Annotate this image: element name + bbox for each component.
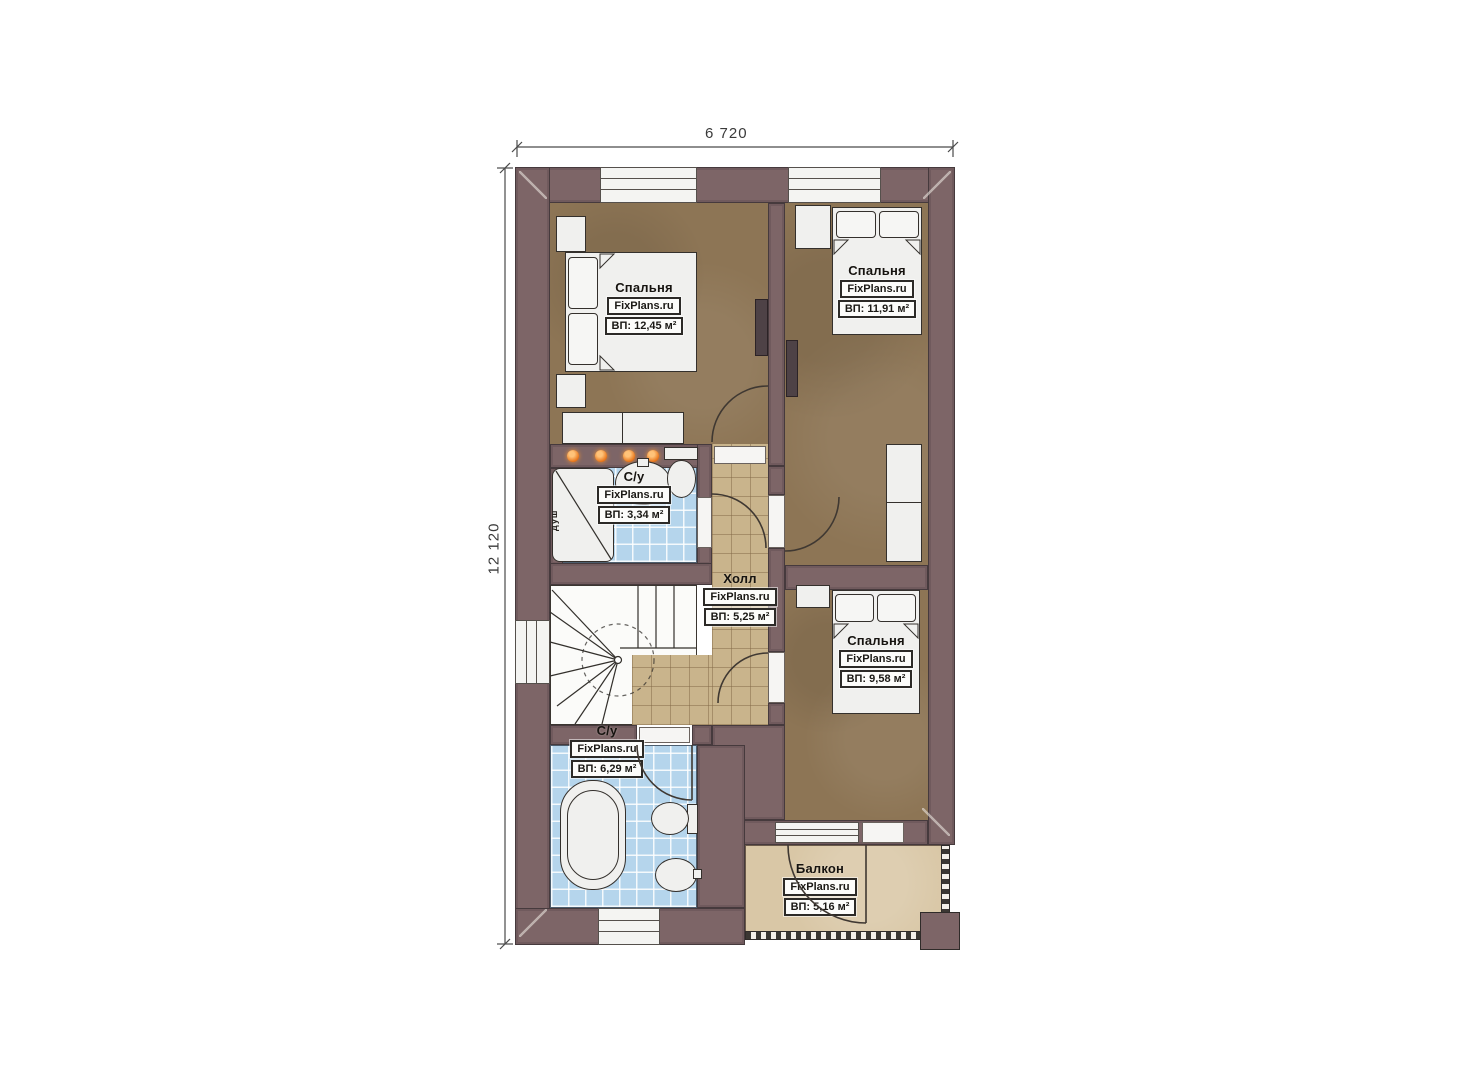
window-balcony (775, 822, 859, 843)
room-name: С/у (597, 723, 618, 738)
window-left-stairs (515, 620, 550, 684)
pillow (836, 211, 876, 238)
watermark: FixPlans.ru (570, 740, 643, 758)
bathtub-inner (567, 790, 619, 880)
wall-bath-main-right (697, 745, 745, 908)
room-area: ВП: 11,91 м² (838, 300, 916, 318)
corner-brace-bottom-right (922, 808, 950, 836)
dresser-left (562, 412, 623, 444)
wall-divider-b1-b2 (768, 203, 785, 466)
nightstand-top (556, 216, 586, 252)
corner-brace-top-left (519, 171, 547, 199)
wall-corridor-right-a (768, 466, 785, 495)
dimension-width-label: 6 720 (705, 125, 748, 142)
watermark: FixPlans.ru (783, 878, 856, 896)
bath-small-door-threshold (697, 497, 712, 548)
bathroom-main-label: С/у FixPlans.ru ВП: 6,29 м² (562, 723, 652, 778)
balcony-door-threshold (862, 822, 904, 843)
pillow (879, 211, 919, 238)
room-area: ВП: 5,25 м² (704, 608, 777, 626)
watermark: FixPlans.ru (840, 280, 913, 298)
room-area: ВП: 12,45 м² (605, 317, 684, 335)
room-name: С/у (624, 469, 645, 484)
sink-tap-icon (637, 458, 649, 467)
window-top-1 (600, 167, 697, 203)
floor-plan: 6 720 12 120 (0, 0, 1473, 1080)
bathroom-small-label: С/у FixPlans.ru ВП: 3,34 м² (588, 469, 680, 524)
room-name: Спальня (615, 280, 673, 295)
hall-floor-extension (632, 655, 712, 725)
bidet-tap-icon (693, 869, 702, 879)
corner-brace-bottom-left (519, 909, 547, 937)
corner-brace-top-right (923, 171, 951, 199)
watermark: FixPlans.ru (703, 588, 776, 606)
watermark: FixPlans.ru (839, 650, 912, 668)
pillow (877, 594, 916, 622)
bedroom-1-label: Спальня FixPlans.ru ВП: 12,45 м² (588, 280, 700, 335)
bidet-icon (655, 858, 697, 892)
wall-stairs-bottom-b (692, 725, 712, 745)
spotlight-icon (567, 450, 579, 462)
watermark: FixPlans.ru (597, 486, 670, 504)
wall-right (928, 167, 955, 845)
room-name: Холл (723, 571, 756, 586)
balcony-corner-post (920, 912, 960, 950)
heater-bedroom2 (786, 340, 798, 397)
wall-top (515, 167, 955, 203)
room-area: ВП: 3,34 м² (598, 506, 671, 524)
toilet-tank-small (664, 447, 698, 460)
wardrobe-bedroom2-a (886, 444, 922, 503)
pillow (835, 594, 874, 622)
shower-label: душ (549, 485, 559, 531)
room-name: Спальня (847, 633, 905, 648)
wardrobe-bedroom2-top (795, 205, 831, 249)
window-top-2 (788, 167, 881, 203)
watermark: FixPlans.ru (607, 297, 680, 315)
dimension-height-label: 12 120 (485, 523, 502, 575)
dresser-right (622, 412, 684, 444)
room-name: Балкон (796, 861, 844, 876)
room-area: ВП: 6,29 м² (571, 760, 644, 778)
balcony-label: Балкон FixPlans.ru ВП: 5,16 м² (770, 861, 870, 916)
wall-corridor-right-c (768, 703, 785, 725)
bedroom3-door-threshold (768, 652, 785, 703)
window-bottom-bath (598, 908, 660, 945)
bedroom1-door-threshold (714, 446, 766, 464)
bedroom-2-label: Спальня FixPlans.ru ВП: 11,91 м² (828, 263, 926, 318)
spotlight-icon (623, 450, 635, 462)
room-area: ВП: 9,58 м² (840, 670, 913, 688)
spotlight-icon (595, 450, 607, 462)
room-area: ВП: 5,16 м² (784, 898, 857, 916)
wall-below-bath-small (550, 563, 712, 585)
hall-label: Холл FixPlans.ru ВП: 5,25 м² (700, 571, 780, 626)
wardrobe-bedroom2-b (886, 502, 922, 562)
room-name: Спальня (848, 263, 906, 278)
heater-bedroom1 (755, 299, 768, 356)
shelf-bedroom3 (796, 585, 830, 608)
bedroom-3-label: Спальня FixPlans.ru ВП: 9,58 м² (826, 633, 926, 688)
nightstand-bottom (556, 374, 586, 408)
toilet-bowl-main (651, 802, 689, 835)
wall-left (515, 167, 550, 945)
bedroom2-door-threshold (768, 495, 785, 548)
